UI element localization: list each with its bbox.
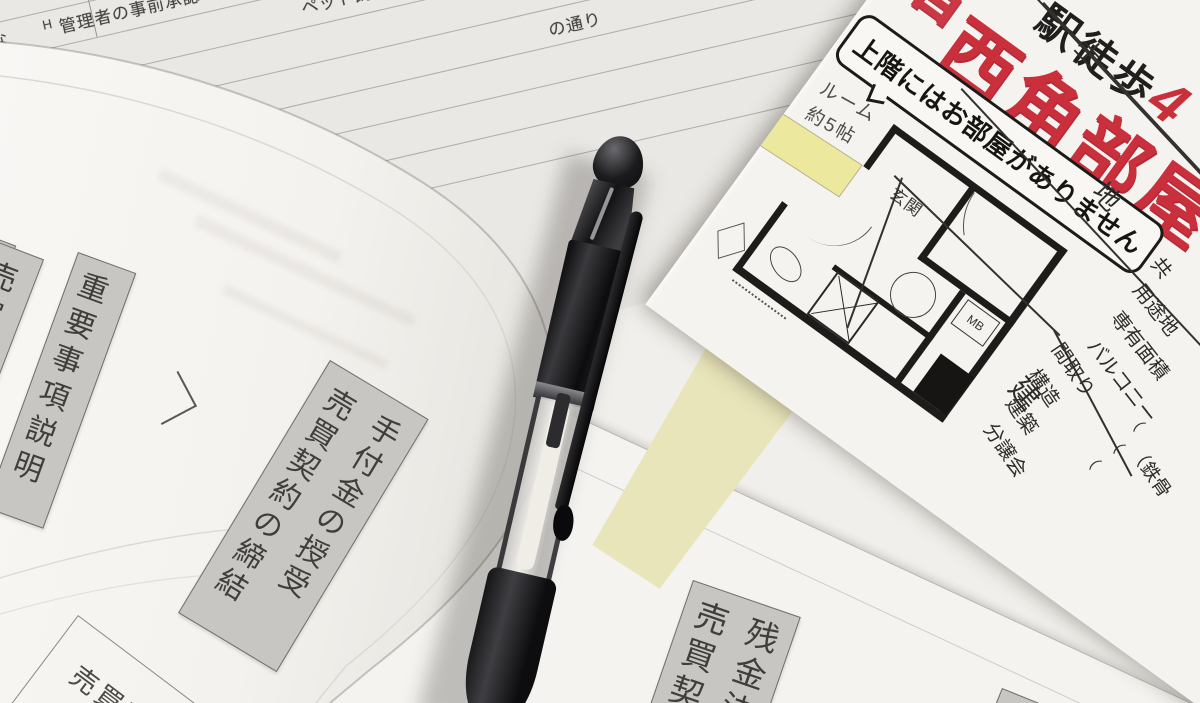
plan-bath-circle — [881, 263, 945, 327]
plan-toilet — [763, 240, 808, 288]
plan-bath-unit — [806, 271, 879, 344]
doc-row-approval: 管理者の事前承認 — [56, 0, 202, 38]
plan-meter-box-label: MB — [964, 312, 987, 334]
plan-wall — [863, 124, 899, 170]
doc-fragment: な — [0, 24, 11, 52]
plan-washstand — [717, 222, 745, 259]
plan-door-arc — [808, 200, 872, 264]
pen-highlight — [590, 187, 615, 240]
photo-canvas: な H 管理者の事前承認 の演奏の禁止 ペット飼育細則記載の通り の通り 残金決… — [0, 0, 1200, 703]
doc-row-prefix: H — [41, 16, 54, 33]
